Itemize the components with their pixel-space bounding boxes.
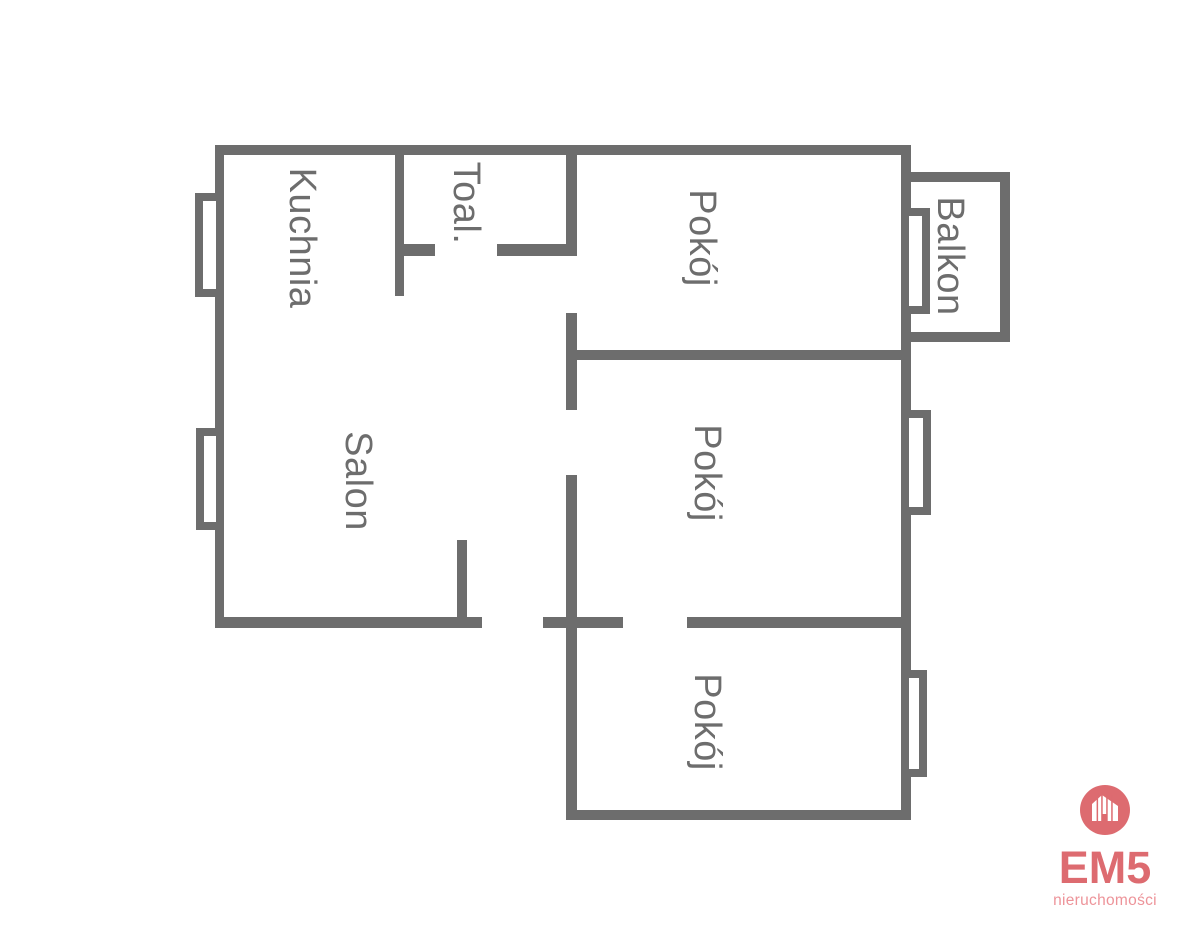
wall-toal-bottom-left xyxy=(395,244,435,256)
room-label-pokoj-1: Pokój xyxy=(683,189,721,287)
wall-balkon-top xyxy=(911,172,1010,182)
logo-mark xyxy=(1080,785,1130,835)
wall-exterior-top xyxy=(215,145,911,155)
wall-hall-wall-mid xyxy=(566,313,577,410)
room-label-salon: Salon xyxy=(339,431,377,531)
floor-plan: KuchniaToal.SalonPokójPokójPokójBalkon xyxy=(0,0,1200,942)
wall-pokoj2-pokoj3-divider xyxy=(687,617,901,628)
wall-hall-wall-top xyxy=(566,155,577,256)
room-label-pokoj-2: Pokój xyxy=(688,424,726,522)
wall-salon-bottom xyxy=(215,617,482,628)
balkon-window xyxy=(901,208,930,314)
brand-name: EM5 xyxy=(1040,845,1170,890)
floor-plan-canvas: KuchniaToal.SalonPokójPokójPokójBalkon E… xyxy=(0,0,1200,942)
kuchnia-window xyxy=(195,193,224,297)
wall-entry-bottom xyxy=(543,617,623,628)
wall-balkon-right xyxy=(1000,172,1010,342)
wall-salon-entry-stub xyxy=(457,540,467,628)
room-label-balkon: Balkon xyxy=(931,196,969,315)
brand-tagline: nieruchomości xyxy=(1040,893,1170,909)
room-label-kuchnia: Kuchnia xyxy=(283,168,321,309)
house-icon xyxy=(1080,785,1130,835)
room-label-pokoj-3: Pokój xyxy=(688,673,726,771)
wall-pokoj3-bottom xyxy=(566,810,911,820)
room-label-toaleta: Toal. xyxy=(447,162,485,245)
brand-logo: EM5 nieruchomości xyxy=(1040,785,1170,909)
wall-hall-wall-bottom xyxy=(566,475,577,820)
wall-pokoj1-pokoj2-divider xyxy=(566,350,901,360)
salon-window xyxy=(196,428,224,530)
wall-kuchnia-toal-divider xyxy=(395,155,404,296)
wall-toal-bottom-right xyxy=(497,244,577,256)
pokoj2-window xyxy=(901,410,931,515)
pokoj3-window xyxy=(901,670,927,777)
wall-balkon-bottom xyxy=(911,332,1010,342)
